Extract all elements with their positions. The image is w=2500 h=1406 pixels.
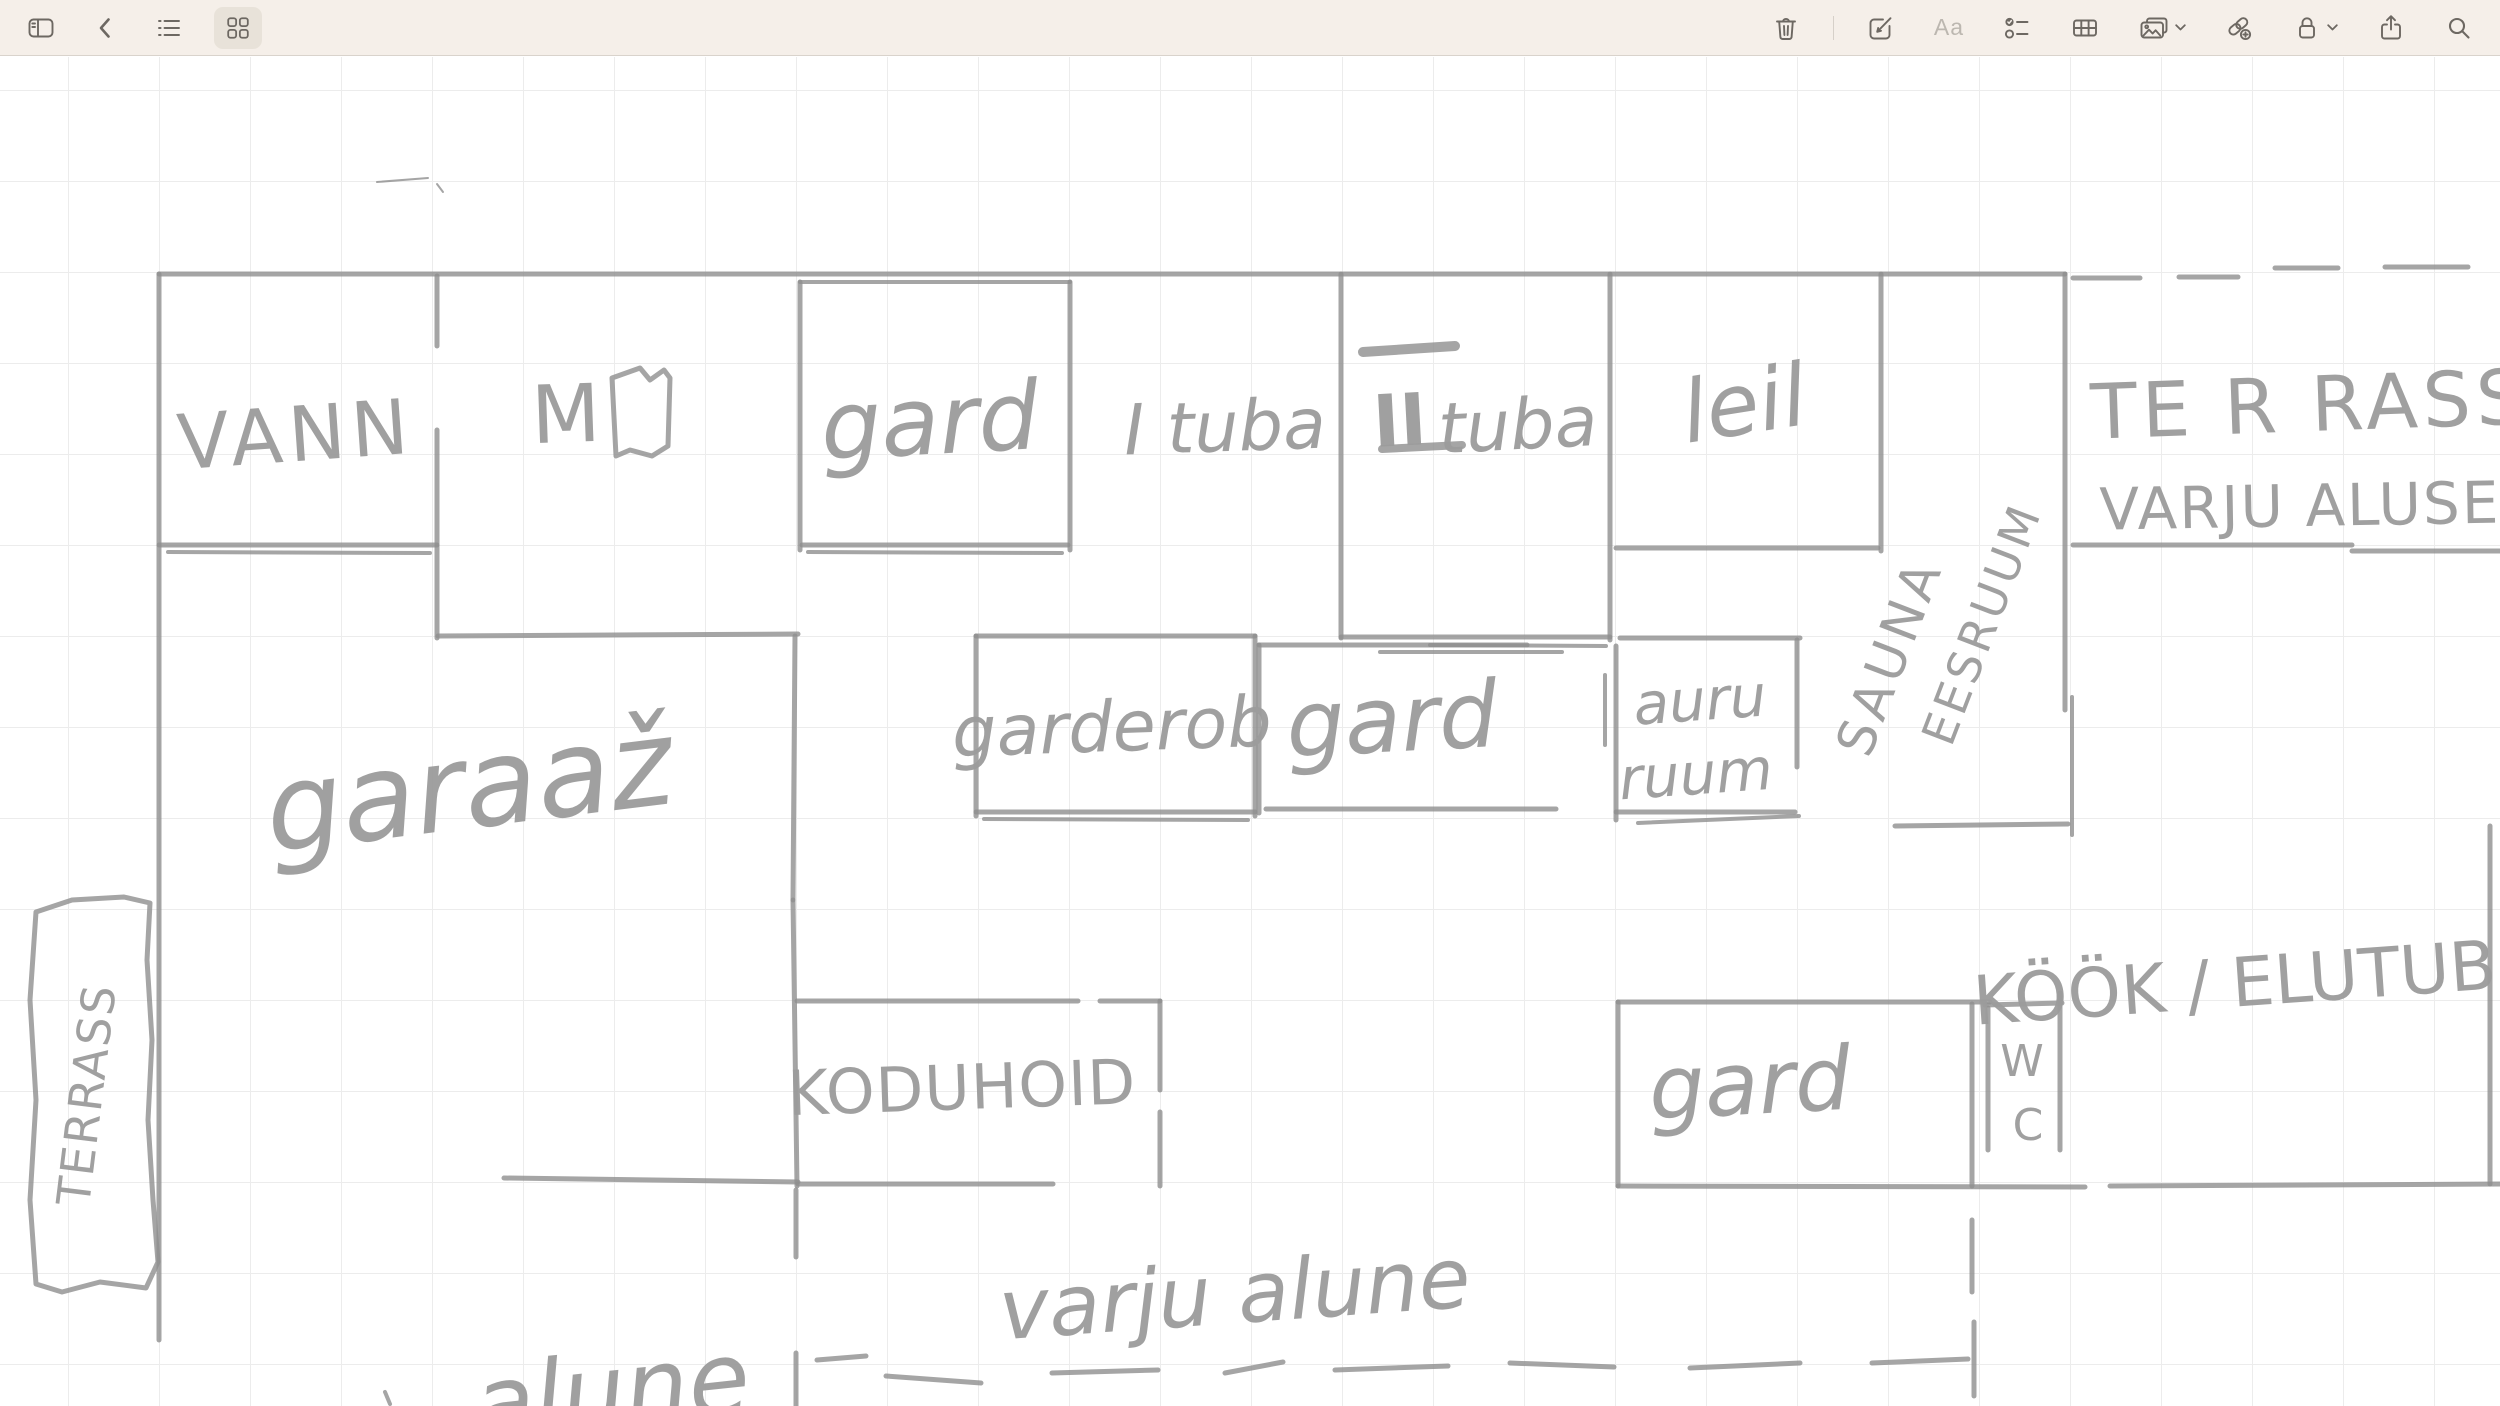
delete-note-button[interactable]	[1765, 9, 1807, 47]
gallery-icon	[224, 14, 252, 42]
chevron-down-icon	[2175, 24, 2186, 31]
share-note-button[interactable]	[2370, 9, 2412, 47]
chevron-left-icon	[92, 13, 118, 43]
toolbar: Aa	[0, 0, 2500, 56]
add-link-icon	[2224, 13, 2254, 43]
table-icon	[2070, 13, 2100, 43]
view-list-button[interactable]	[148, 9, 190, 47]
media-icon	[2138, 13, 2170, 43]
note-canvas[interactable]	[0, 57, 2500, 1406]
view-gallery-button[interactable]	[214, 7, 262, 49]
insert-table-button[interactable]	[2064, 9, 2106, 47]
format-icon: Aa	[1934, 14, 1964, 41]
toolbar-right-group: Aa	[1765, 9, 2480, 47]
add-link-button[interactable]	[2218, 9, 2260, 47]
toolbar-left-group	[20, 7, 262, 49]
insert-media-button[interactable]	[2132, 9, 2192, 47]
checklist-button[interactable]	[1996, 9, 2038, 47]
new-note-button[interactable]	[1860, 9, 1902, 47]
back-button[interactable]	[86, 9, 124, 47]
share-icon	[2376, 13, 2406, 43]
compose-icon	[1866, 13, 1896, 43]
toggle-sidebar-button[interactable]	[20, 9, 62, 47]
search-icon	[2444, 13, 2474, 43]
text-format-button[interactable]: Aa	[1928, 10, 1970, 45]
trash-icon	[1771, 13, 1801, 43]
search-button[interactable]	[2438, 9, 2480, 47]
toolbar-divider	[1833, 16, 1834, 40]
sidebar-icon	[26, 13, 56, 43]
lock-note-button[interactable]	[2286, 9, 2344, 47]
chevron-down-icon	[2327, 24, 2338, 31]
list-icon	[154, 13, 184, 43]
checklist-icon	[2002, 13, 2032, 43]
lock-icon	[2292, 13, 2322, 43]
